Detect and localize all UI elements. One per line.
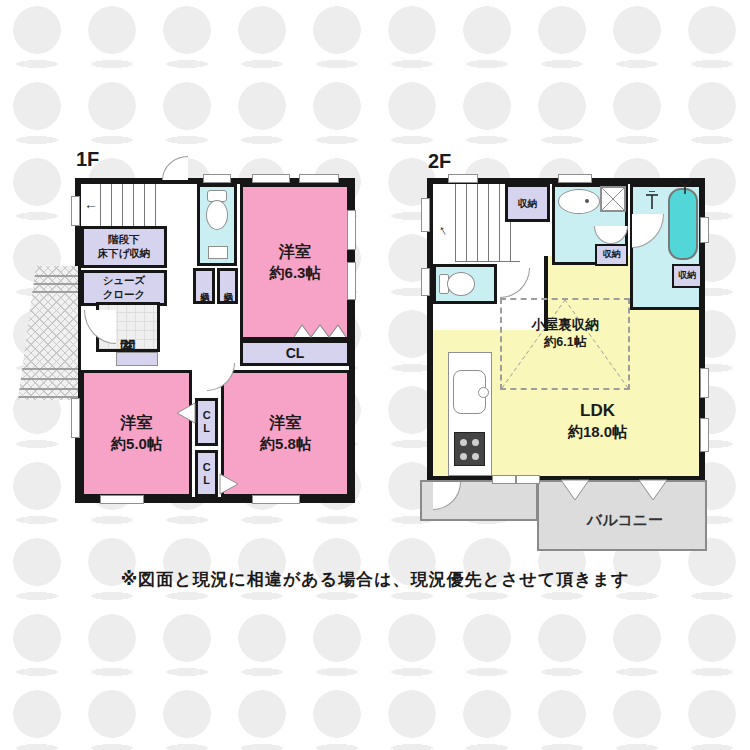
room-cl-mid: CL [195, 398, 218, 446]
window [71, 398, 80, 438]
window [448, 174, 478, 183]
ldk-label-block: LDK 約18.0帖 [530, 400, 665, 442]
window [421, 198, 430, 232]
bedroom63-name: 洋室 [270, 242, 321, 263]
room-cl-bottom: CL [195, 450, 218, 497]
stairs-up-arrow-icon: ← [84, 196, 98, 212]
room-bedroom-50: 洋室 約5.0帖 [81, 370, 192, 497]
window [252, 495, 300, 504]
bedroom50-name: 洋室 [111, 413, 162, 434]
sink-knob-icon [478, 387, 489, 398]
shoes-cloak-label-1: シューズ [103, 274, 146, 288]
window [421, 268, 430, 296]
shower-icon [677, 181, 693, 194]
under-stairs-storage-label-1: 階段下 [98, 233, 151, 247]
backdoor-arc [162, 156, 188, 180]
entrance-label: 玄関 [118, 326, 138, 328]
balcony-label: バルコニー [560, 510, 690, 530]
bathtub-icon [668, 188, 698, 260]
room-under-stairs-storage: 階段下 床下げ収納 [81, 226, 167, 268]
ldk-size: 約18.0帖 [530, 422, 665, 442]
faucet-icon [646, 191, 658, 209]
toilet-bowl-icon [206, 200, 228, 230]
bedroom58-size: 約5.8帖 [260, 434, 311, 454]
storage-a-label: 収納 [198, 285, 210, 287]
room-storage-top-2f: 収納 [505, 184, 550, 222]
closet-door-left-icon [176, 402, 196, 424]
cl-bottom-label: CL [199, 461, 213, 487]
room-storage-b: 収納 [217, 268, 238, 304]
floor1-label: 1F [76, 148, 99, 171]
window [299, 174, 339, 183]
window [252, 174, 290, 183]
storage-b-label: 収納 [222, 285, 234, 287]
floor2-label: 2F [428, 150, 451, 173]
window [71, 196, 80, 226]
window [347, 262, 356, 300]
ldk-name: LDK [530, 400, 665, 422]
storage-top-label: 収納 [518, 197, 538, 210]
room-storage-right-2f: 収納 [672, 264, 702, 288]
closet-door-right-icon [219, 473, 239, 495]
room-storage-mid-2f: 収納 [595, 244, 628, 266]
room-cl-top: CL [240, 340, 350, 366]
washbasin-icon [558, 189, 600, 214]
window [558, 174, 592, 183]
entrance-porch [116, 352, 158, 366]
sliding-window [492, 475, 540, 484]
folding-door-icon [294, 324, 346, 338]
window-marker-icon [560, 479, 590, 501]
stove-icon [454, 432, 485, 466]
storage-mid-label: 収納 [603, 249, 621, 261]
bedroom58-name: 洋室 [260, 413, 311, 434]
shoes-cloak-label-2: クローク [103, 288, 146, 302]
window-marker-icon [638, 479, 668, 501]
washbasin-drain-icon [585, 199, 589, 203]
room-shoes-cloak: シューズ クローク [81, 270, 167, 306]
bedroom50-size: 約5.0帖 [111, 434, 162, 454]
attic-name: 小屋裏収納 [502, 316, 628, 334]
attic-size: 約6.1帖 [502, 334, 628, 350]
room-storage-a: 収納 [193, 268, 215, 304]
cl-mid-label: CL [199, 409, 213, 435]
storage-right-label: 収納 [678, 270, 696, 282]
bedroom63-size: 約6.3帖 [270, 263, 321, 283]
washer-pan-icon [600, 186, 626, 212]
entrance-approach [18, 266, 78, 400]
window [347, 210, 356, 250]
toilet-step-icon [208, 246, 228, 259]
window [100, 495, 144, 504]
floorplan-canvas: 1F ← 階段下 床下げ収納 シューズ クローク 玄関 収納 収納 [0, 0, 750, 750]
stairs-1f [100, 184, 165, 230]
room-bedroom-58: 洋室 約5.8帖 [221, 370, 350, 497]
window [700, 217, 709, 243]
attic-storage-area: 小屋裏収納 約6.1帖 [500, 298, 630, 390]
window [700, 368, 709, 398]
toilet-bowl-icon [447, 272, 475, 296]
window [203, 174, 231, 183]
disclaimer-note: ※図面と現況に相違がある場合は、現況優先とさせて頂きます [0, 568, 750, 591]
cl-top-label: CL [286, 344, 305, 362]
under-stairs-storage-label-2: 床下げ収納 [98, 247, 151, 261]
room-bedroom-63: 洋室 約6.3帖 [240, 184, 350, 340]
window [700, 418, 709, 452]
